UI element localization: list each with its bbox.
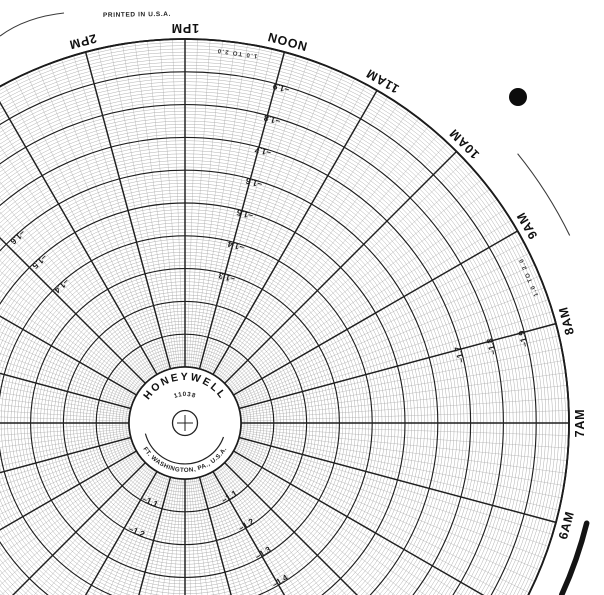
minor-spoke xyxy=(0,126,149,380)
minor-spokes xyxy=(0,39,569,595)
time-label: 6AM xyxy=(556,510,577,541)
time-label: 11AM xyxy=(363,66,401,96)
scale-value-label: –1.1 xyxy=(220,488,240,505)
range-text: 1.0 TO 2.0 xyxy=(216,47,258,59)
scale-value-label: –1.9 xyxy=(271,81,290,95)
printed-in-usa: PRINTED IN U.S.A. xyxy=(103,11,171,19)
time-label: 8AM xyxy=(556,305,577,336)
polar-grid: –1.3–1.4–1.5–1.6–1.7–1.8–1.9–1.4–1.5–1.6… xyxy=(0,0,604,595)
punch-dot xyxy=(509,88,527,106)
paper-edge-arc-top-left xyxy=(0,13,64,36)
time-label: 2PM xyxy=(67,31,98,52)
minor-spoke xyxy=(0,118,151,378)
minor-spoke xyxy=(0,448,135,593)
time-label: 7AM xyxy=(573,409,587,438)
minor-spoke xyxy=(0,446,134,581)
time-label: 1PM xyxy=(171,21,199,35)
minor-spoke xyxy=(0,253,135,398)
scale-value-label: –1.4 xyxy=(226,239,245,253)
hub: HONEYWELL 11038 FT. WASHINGTON, PA., U.S… xyxy=(129,367,241,479)
chart-paper: –1.3–1.4–1.5–1.6–1.7–1.8–1.9–1.4–1.5–1.6… xyxy=(0,0,604,595)
range-text: 1.0 TO 2.0 xyxy=(518,257,540,297)
time-label: 9AM xyxy=(514,210,541,242)
scale-value-label: –1.5 xyxy=(235,207,254,221)
scale-value-label: –1.3 xyxy=(217,270,236,284)
minor-spoke xyxy=(229,457,489,595)
scale-value-label: –1.6 xyxy=(244,176,263,190)
